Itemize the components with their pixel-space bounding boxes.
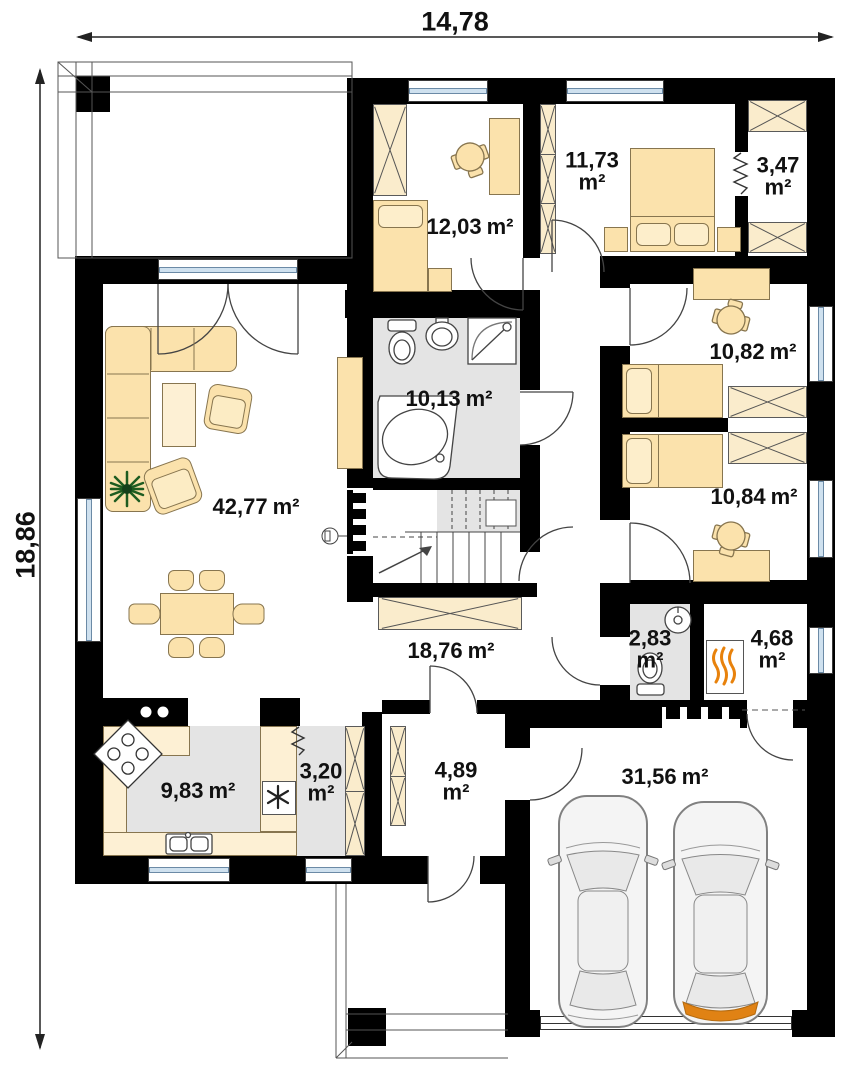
entry-door-gap	[428, 856, 480, 884]
radiator-valve	[322, 528, 347, 544]
wardrobe-bedroom-bottom-right	[728, 432, 807, 464]
door-gap-garage-hall	[747, 700, 793, 728]
stair-bottom-wall	[362, 583, 537, 597]
area-unit: m²	[629, 650, 672, 672]
room-label-bedroom-main: 11,73m²	[565, 150, 619, 195]
coffee-table	[162, 383, 196, 447]
wardrobe-bedroom-top-right	[728, 386, 807, 418]
pillow	[674, 223, 709, 246]
armchair-top	[202, 383, 253, 436]
pillow	[636, 223, 671, 246]
wardrobe-bedroom-left	[373, 104, 407, 196]
room-label-vestibule: 4,89m²	[435, 760, 478, 805]
car-1	[547, 796, 658, 1027]
room-label-closet: 3,47m²	[757, 155, 800, 200]
area-value: 3,20	[300, 761, 343, 783]
area-unit: m²	[273, 494, 300, 519]
door-gap-bedroom-main	[552, 256, 600, 284]
room-label-kitchen: 9,83m²	[161, 780, 236, 802]
window-bedroom-main	[566, 80, 664, 102]
area-value: 9,83	[161, 778, 204, 803]
nightstand	[604, 227, 628, 252]
dining-chair	[199, 637, 225, 658]
room-label-living-room: 42,77m²	[213, 496, 300, 518]
wardrobe-pantry	[345, 726, 365, 856]
vestibule-top-wall-right	[477, 700, 505, 714]
kitchen-counter-bottom	[103, 832, 297, 856]
door-gap-bedroom-tr	[600, 288, 630, 346]
area-unit: m²	[682, 764, 709, 789]
bedroom-divider-wall	[523, 104, 540, 258]
dining-chair	[168, 637, 194, 658]
area-value: 4,68	[751, 628, 794, 650]
door-gap-bedroom-left	[523, 258, 540, 290]
wardrobe-bedroom-main	[540, 104, 556, 254]
terrace-pillar	[76, 76, 110, 112]
area-value: 10,84	[711, 484, 766, 509]
area-unit: m²	[435, 782, 478, 804]
window-pantry	[305, 858, 352, 882]
wc-boiler-divider	[690, 604, 704, 700]
area-value: 12,03	[427, 214, 482, 239]
room-label-hall: 18,76m²	[408, 640, 495, 662]
room-label-wc: 2,83m²	[629, 628, 672, 673]
window-bedroom-top-right	[809, 306, 833, 382]
area-value: 31,56	[622, 764, 677, 789]
area-value: 2,83	[629, 628, 672, 650]
blanket-line	[631, 216, 714, 217]
area-value: 42,77	[213, 494, 268, 519]
area-unit: m²	[300, 783, 343, 805]
wardrobe-vestibule	[390, 726, 406, 826]
wardrobe-closet-top	[748, 100, 807, 132]
nightstand	[428, 268, 452, 292]
area-unit: m²	[565, 172, 619, 194]
window-boiler-room	[809, 627, 833, 674]
bedrooms-right-divider	[600, 418, 728, 432]
area-unit: m²	[208, 778, 235, 803]
spring-gap-closet	[735, 152, 748, 196]
desk-chair-top-right	[710, 296, 754, 338]
porch-column	[348, 1008, 386, 1046]
area-value: 18,76	[408, 638, 463, 663]
room-label-bedroom-left: 12,03m²	[427, 216, 514, 238]
area-unit: m²	[751, 650, 794, 672]
area-value: 10,13	[406, 386, 461, 411]
dining-chair	[129, 604, 161, 625]
vestibule-top-wall-left	[382, 700, 430, 714]
desk-chair-bedroom-left	[448, 138, 493, 182]
room-label-bathroom: 10,13m²	[406, 388, 493, 410]
door-gap-bathroom	[520, 390, 540, 445]
room-label-garage: 31,56m²	[622, 766, 709, 788]
kitchen-top-wall-right	[260, 698, 300, 726]
room-label-bedroom-bottom-right: 10,84m²	[711, 486, 798, 508]
radiator-gap-garage	[662, 700, 740, 728]
sideboard	[337, 357, 363, 469]
nightstand	[717, 227, 741, 252]
pillow	[626, 438, 652, 484]
window-living-room	[77, 498, 101, 642]
kitchen-counter-top	[127, 726, 190, 756]
area-value: 11,73	[565, 150, 619, 172]
desk-bedroom-left	[489, 118, 520, 195]
terrace-glass-door	[158, 259, 298, 280]
door-gap-vestibule-garage	[505, 748, 530, 800]
window-bedroom-bottom-right	[809, 480, 833, 558]
garage-door	[540, 1016, 792, 1030]
dining-chair	[168, 570, 194, 591]
area-value: 4,89	[435, 760, 478, 782]
blanket-line	[658, 435, 659, 487]
dimension-height-label: 18,86	[11, 511, 42, 579]
desk-bedroom-top-right	[693, 268, 770, 300]
boiler-furnace	[706, 640, 744, 694]
room-label-bedroom-top-right: 10,82m²	[710, 341, 797, 363]
fridge	[262, 781, 296, 815]
window-kitchen	[148, 858, 230, 882]
room-label-boiler-room: 4,68m²	[751, 628, 794, 673]
dining-table	[160, 593, 234, 635]
wardrobe-closet-bottom	[748, 222, 807, 253]
radiator-gap-living	[347, 488, 373, 556]
understairs-floor	[437, 488, 520, 532]
kitchen-counter-right	[260, 726, 297, 832]
area-unit: m²	[487, 214, 514, 239]
area-unit: m²	[757, 177, 800, 199]
pillow	[378, 205, 423, 228]
bathroom-bottom-wall	[373, 478, 520, 490]
wardrobe-hall	[378, 597, 522, 630]
floor-plan: 14,78 18,86	[0, 0, 851, 1079]
car-2	[661, 802, 779, 1024]
dimension-width-label: 14,78	[421, 7, 489, 38]
area-unit: m²	[466, 386, 493, 411]
door-gap-wc	[600, 637, 630, 685]
kitchen-top-wall-left	[75, 698, 188, 726]
plan-symbols-layer	[0, 0, 851, 1079]
area-unit: m²	[771, 484, 798, 509]
dining-chair	[233, 604, 265, 625]
pillow	[626, 368, 652, 414]
area-unit: m²	[468, 638, 495, 663]
sofa-vertical	[105, 326, 151, 512]
window-bedroom-left	[408, 80, 488, 102]
area-unit: m²	[770, 339, 797, 364]
desk-bedroom-bottom-right	[693, 550, 770, 582]
door-gap-bedroom-br	[600, 520, 630, 583]
bathroom-top-wall	[345, 290, 540, 318]
dining-chair	[199, 570, 225, 591]
bedroom-bottom-wall	[600, 580, 835, 604]
pantry-vestibule-wall	[362, 712, 382, 856]
area-value: 3,47	[757, 155, 800, 177]
room-label-pantry: 3,20m²	[300, 761, 343, 806]
blanket-line	[658, 365, 659, 417]
area-value: 10,82	[710, 339, 765, 364]
